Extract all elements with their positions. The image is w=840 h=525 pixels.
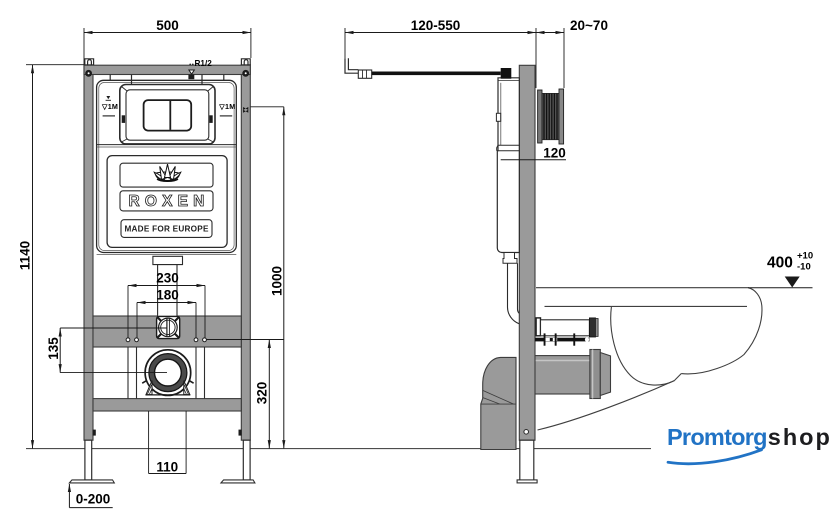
svg-text:Promtorgshop: Promtorgshop (667, 424, 832, 450)
svg-text:180: 180 (156, 288, 179, 303)
svg-text:ROXEN: ROXEN (128, 193, 209, 210)
svg-text:135: 135 (46, 337, 61, 360)
svg-text:120-550: 120-550 (411, 18, 461, 33)
svg-text:▽1M: ▽1M (218, 102, 235, 111)
svg-text:110: 110 (156, 460, 178, 475)
svg-text:20~70: 20~70 (570, 18, 608, 33)
svg-text:R1/2: R1/2 (195, 59, 213, 68)
svg-text:320: 320 (254, 382, 269, 405)
svg-text:-10: -10 (797, 262, 811, 273)
svg-text:500: 500 (156, 18, 179, 33)
svg-text:120: 120 (543, 146, 566, 161)
svg-text:0-200: 0-200 (76, 492, 111, 507)
svg-text:MADE FOR EUROPE: MADE FOR EUROPE (124, 224, 209, 233)
svg-text:400: 400 (767, 255, 793, 272)
svg-text:▽1M: ▽1M (101, 102, 118, 111)
svg-text:1000: 1000 (270, 266, 285, 296)
svg-text:1140: 1140 (18, 241, 33, 270)
svg-text:230: 230 (156, 271, 179, 286)
svg-text:+10: +10 (797, 251, 813, 262)
